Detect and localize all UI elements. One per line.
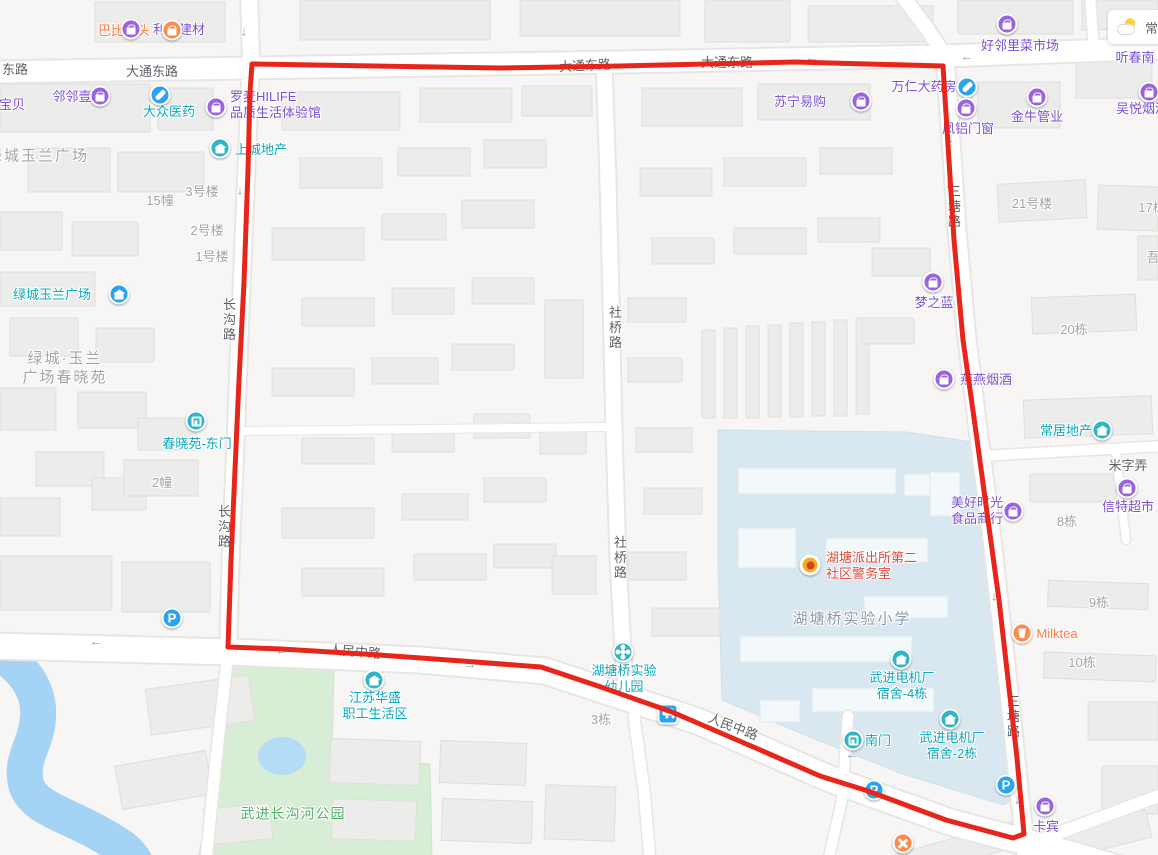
cup-icon[interactable] xyxy=(1012,623,1033,644)
poi-label[interactable]: 罗麦HILIFE 品质生活体验馆 xyxy=(230,89,321,121)
gate-icon[interactable] xyxy=(186,411,207,432)
poi-label[interactable]: 上城地产 xyxy=(235,142,287,158)
building-label: 2号楼 xyxy=(190,223,223,239)
building-label: 吾 xyxy=(1146,250,1158,266)
pin-icon[interactable] xyxy=(613,642,634,663)
bag-icon[interactable] xyxy=(1035,796,1056,817)
poi-label[interactable]: 湖塘桥实验 幼儿园 xyxy=(591,663,656,695)
gate-icon[interactable] xyxy=(843,730,864,751)
capsule-icon[interactable] xyxy=(150,85,171,106)
badge-icon[interactable] xyxy=(800,555,821,576)
area-label: 武进长沟河公园 xyxy=(241,805,346,824)
bag-icon[interactable] xyxy=(1117,478,1138,499)
oneway-arrow-down: ↓ xyxy=(237,183,244,198)
oneway-arrow-left: ← xyxy=(806,50,819,65)
poi-label[interactable]: 春晓苑-东门 xyxy=(162,436,231,452)
building-label: 3号楼 xyxy=(185,184,218,200)
poi-label[interactable]: 宝贝 xyxy=(0,97,25,113)
bag-icon[interactable] xyxy=(206,97,227,118)
poi-label[interactable]: 听春南 xyxy=(1115,50,1154,66)
bag-icon[interactable] xyxy=(1003,501,1024,522)
weather-widget[interactable]: 常州 xyxy=(1108,10,1158,44)
poi-label[interactable]: 好邻里菜市场 xyxy=(981,38,1059,54)
poi-label[interactable]: 绿城玉兰广场 xyxy=(13,287,91,303)
poi-label[interactable]: 武进电机厂 宿舍-2栋 xyxy=(919,730,984,762)
bag-icon[interactable] xyxy=(923,272,944,293)
bag-icon[interactable] xyxy=(1027,87,1048,108)
area-label: 绿城玉兰广场 xyxy=(0,147,89,166)
poi-label[interactable]: 苏宁易购 xyxy=(774,94,826,110)
road-label: 长沟路 xyxy=(216,505,230,550)
parking-icon[interactable] xyxy=(864,780,885,801)
map-viewport[interactable]: 东路大通东路大通东路大通东路长沟路长沟路社桥路社桥路三塘路三塘路人民中路人民中路… xyxy=(0,0,1158,855)
bag-icon[interactable] xyxy=(851,91,872,112)
building-label: 1号楼 xyxy=(195,249,228,265)
poi-label[interactable]: 吴悦烟酒 xyxy=(1116,101,1158,117)
poi-label[interactable]: 卡宾 xyxy=(1033,819,1059,835)
oneway-arrow-left: ← xyxy=(90,634,103,649)
oneway-arrow-right: → xyxy=(464,657,477,672)
building-label: 9栋 xyxy=(1089,595,1109,611)
road-label: 社桥路 xyxy=(607,306,621,351)
house-icon[interactable] xyxy=(364,670,385,691)
road-label: 三塘路 xyxy=(1005,695,1019,740)
road-label: 长沟路 xyxy=(221,298,235,343)
oneway-arrow-down: ↓ xyxy=(1014,792,1021,807)
oneway-arrow-down: ↓ xyxy=(991,589,998,604)
bag-icon[interactable] xyxy=(121,19,142,40)
parking-icon[interactable] xyxy=(996,775,1017,796)
building-label: 2幢 xyxy=(152,475,172,491)
capsule-icon[interactable] xyxy=(957,77,978,98)
road-label: 人民中路 xyxy=(328,642,381,662)
building-label: 8栋 xyxy=(1057,514,1077,530)
sun-cloud-icon xyxy=(1116,18,1140,36)
bag-icon[interactable] xyxy=(934,369,955,390)
building-label: 17栋 xyxy=(1138,200,1158,216)
bag-icon[interactable] xyxy=(956,98,977,119)
oneway-arrow-down: ↓ xyxy=(945,176,952,191)
area-label: 绿城·玉兰 广场春晓苑 xyxy=(22,349,107,387)
oneway-arrow-down: ↓ xyxy=(948,131,955,146)
building-label: 20栋 xyxy=(1060,322,1087,338)
weather-city-label: 常州 xyxy=(1145,18,1158,37)
bag-icon[interactable] xyxy=(162,20,183,41)
house-icon[interactable] xyxy=(891,649,912,670)
poi-label[interactable]: 邻邻壹 xyxy=(52,89,91,105)
poi-label[interactable]: 信特超市 xyxy=(1102,499,1154,515)
poi-label[interactable]: 万仁大药房 xyxy=(891,79,956,95)
road-label: 大通东路 xyxy=(559,57,612,76)
road-label: 东路 xyxy=(2,62,28,78)
building-label: 3栋 xyxy=(591,712,611,728)
house-icon[interactable] xyxy=(940,709,961,730)
label-overlay: 东路大通东路大通东路大通东路长沟路长沟路社桥路社桥路三塘路三塘路人民中路人民中路… xyxy=(0,0,1158,855)
building-label: 21号楼 xyxy=(1012,196,1052,212)
oneway-arrow-down: ↓ xyxy=(241,24,248,39)
road-label: 三塘路 xyxy=(946,185,960,230)
house-icon[interactable] xyxy=(210,138,231,159)
poi-label[interactable]: 梦之蓝 xyxy=(914,295,953,311)
poi-label[interactable]: 武进电机厂 宿舍-4栋 xyxy=(869,670,934,702)
bag-icon[interactable] xyxy=(1139,82,1158,103)
bag-icon[interactable] xyxy=(90,86,111,107)
building-label: 10栋 xyxy=(1068,655,1095,671)
house-icon[interactable] xyxy=(1092,420,1113,441)
poi-label[interactable]: 燕燕烟酒 xyxy=(960,372,1012,388)
poi-label[interactable]: 南门 xyxy=(865,733,891,749)
bag-icon[interactable] xyxy=(997,14,1018,35)
poi-label[interactable]: 大众医药 xyxy=(143,104,195,120)
road-label: 米字弄 xyxy=(1108,458,1147,474)
poi-label[interactable]: 湖塘派出所第二 社区警务室 xyxy=(826,550,917,582)
road-label: 社桥路 xyxy=(612,536,626,581)
parking-icon[interactable] xyxy=(162,608,183,629)
poi-label[interactable]: 美好时光 食品商行 xyxy=(951,495,1003,527)
poi-label[interactable]: Milktea xyxy=(1036,626,1077,642)
road-label: 大通东路 xyxy=(126,64,178,80)
building-label: 15幢 xyxy=(146,193,173,209)
road-label: 人民中路 xyxy=(706,710,760,744)
oneway-arrow-left: ← xyxy=(961,49,974,64)
restaurant-icon[interactable] xyxy=(893,833,914,854)
road-label: 大通东路 xyxy=(701,55,753,71)
oneway-arrow-left: ← xyxy=(276,643,289,658)
area-label: 湖塘桥实验小学 xyxy=(792,610,911,629)
house-icon[interactable] xyxy=(109,284,130,305)
poi-label[interactable]: 金牛管业 xyxy=(1011,109,1063,125)
poi-label[interactable]: 江苏华盛 职工生活区 xyxy=(342,690,407,722)
bus-stop-icon[interactable] xyxy=(658,704,679,725)
poi-label[interactable]: 常居地产 xyxy=(1040,423,1092,439)
